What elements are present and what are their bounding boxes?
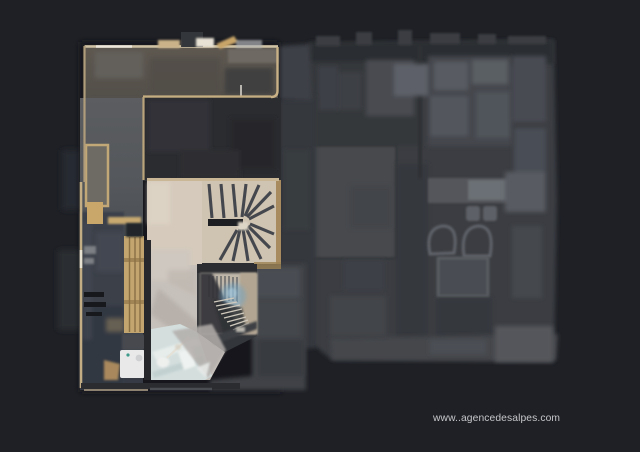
svg-text:www..agencedesalpes.com: www..agencedesalpes.com: [432, 413, 560, 424]
